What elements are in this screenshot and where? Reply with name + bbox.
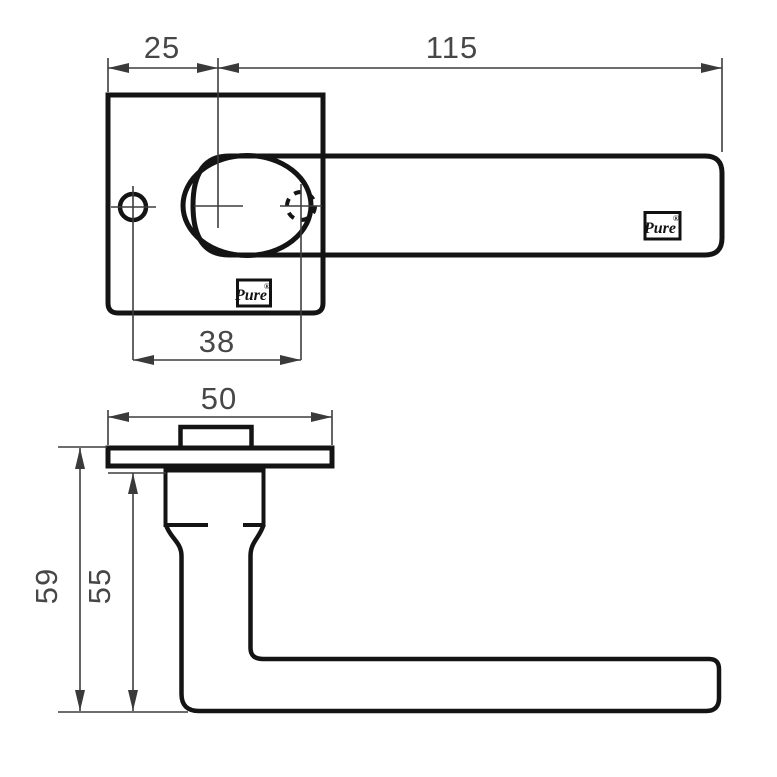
plate-logo-text: Pure	[234, 287, 267, 304]
dim-50-label: 50	[201, 381, 237, 416]
dimension-50: 50	[108, 381, 332, 445]
dimension-115: 115	[218, 30, 722, 152]
plate-logo-mark: ®	[264, 282, 270, 291]
lever-logo-text: Pure	[643, 220, 676, 237]
drawing-canvas: 25 115 38 Pure ® Pure ®	[0, 0, 777, 777]
lever-side-profile	[166, 525, 719, 711]
dimension-25: 25	[108, 30, 218, 92]
dim-115-label: 115	[426, 30, 478, 65]
lever-logo-stamp: Pure ®	[643, 213, 680, 240]
dim-25-label: 25	[144, 30, 180, 65]
dimension-38: 38	[133, 324, 301, 365]
lever-logo-mark: ®	[673, 214, 679, 223]
bearing-collar	[166, 471, 264, 526]
side-view: 50 59 55	[29, 381, 719, 712]
rose-plate-outline	[108, 95, 323, 313]
plate-logo-stamp: Pure ®	[234, 280, 271, 306]
dim-38-label: 38	[199, 324, 235, 359]
dimension-55: 55	[82, 473, 166, 711]
dim-55-label: 55	[82, 568, 117, 604]
spindle-cap	[181, 427, 252, 448]
lever-outline	[193, 156, 722, 255]
top-view: 25 115 38 Pure ® Pure ®	[108, 30, 722, 365]
dim-59-label: 59	[29, 568, 64, 604]
technical-drawing-page: 25 115 38 Pure ® Pure ®	[0, 0, 777, 777]
rose-plate-side	[108, 448, 332, 466]
